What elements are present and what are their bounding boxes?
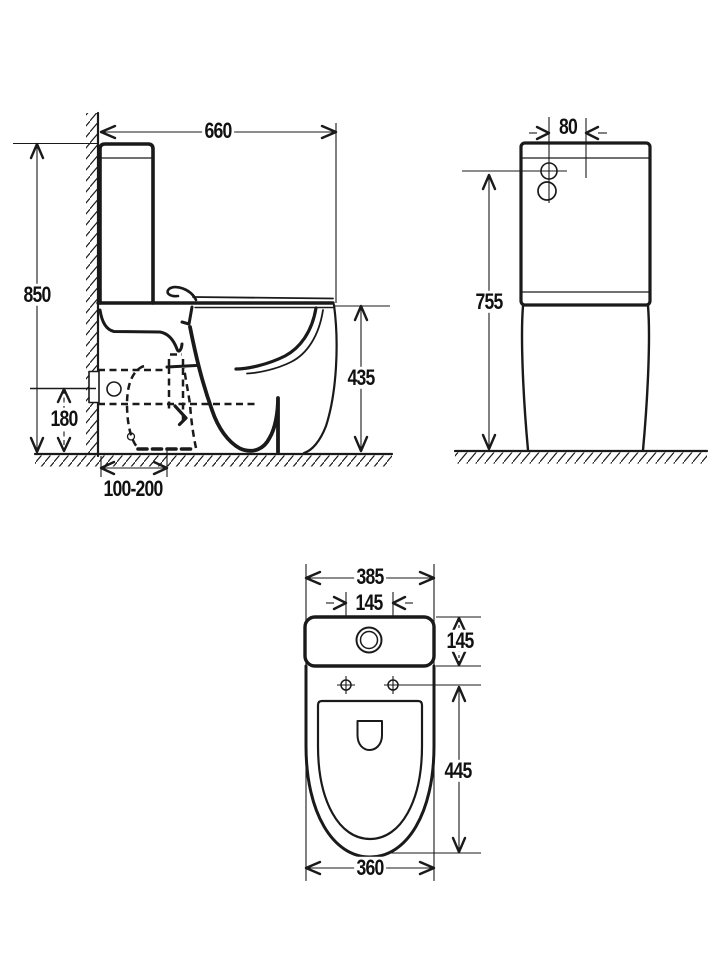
wall-outlet-pipe bbox=[89, 372, 99, 403]
dim-label-bowl-length: 445 bbox=[442, 760, 474, 782]
trap-top-line bbox=[167, 366, 196, 368]
inlet-hole bbox=[107, 382, 121, 396]
dim-label-outlet-height: 180 bbox=[48, 408, 80, 430]
floor-hatch bbox=[35, 456, 392, 467]
pedestal-right-edge bbox=[643, 306, 649, 450]
top-view bbox=[305, 564, 481, 881]
dim-label-cistern-depth: 145 bbox=[444, 630, 476, 652]
bowl-interior bbox=[190, 327, 278, 452]
seat-cover-line bbox=[193, 297, 333, 299]
cistern-outline-side bbox=[100, 144, 153, 303]
dim-label-outlet-offset: 100-200 bbox=[101, 478, 165, 500]
dim-label-bolt-spacing: 145 bbox=[353, 592, 385, 614]
dim-label-seat-height: 435 bbox=[345, 367, 377, 389]
bowl-rim-inner bbox=[247, 310, 323, 374]
dim-label-bowl-width: 360 bbox=[354, 857, 386, 879]
dim-label-overall-depth: 660 bbox=[202, 120, 234, 142]
dim-label-inlet-height: 755 bbox=[473, 291, 505, 313]
dim-label-overall-height: 850 bbox=[21, 284, 53, 306]
side-view-arrowheads bbox=[31, 126, 367, 474]
technical-drawing-toilet: 660 850 435 180 100-200 80 755 385 145 1… bbox=[0, 0, 728, 970]
seat-hinge bbox=[182, 307, 192, 324]
trap-weir bbox=[175, 406, 186, 425]
pedestal-left-edge bbox=[522, 306, 528, 450]
floor-hatch-front bbox=[455, 453, 707, 464]
seat-lip-curl bbox=[168, 287, 196, 300]
hidden-trap-outline bbox=[98, 355, 258, 449]
wall-hatch bbox=[86, 113, 98, 455]
dim-label-inlet-offset: 80 bbox=[557, 116, 580, 138]
cistern-outline-top bbox=[305, 617, 434, 666]
pan-front-face bbox=[304, 305, 337, 453]
under-cistern-shelf bbox=[100, 310, 182, 351]
bowl-rim-outer bbox=[236, 308, 316, 369]
dim-label-cistern-width: 385 bbox=[354, 566, 386, 588]
